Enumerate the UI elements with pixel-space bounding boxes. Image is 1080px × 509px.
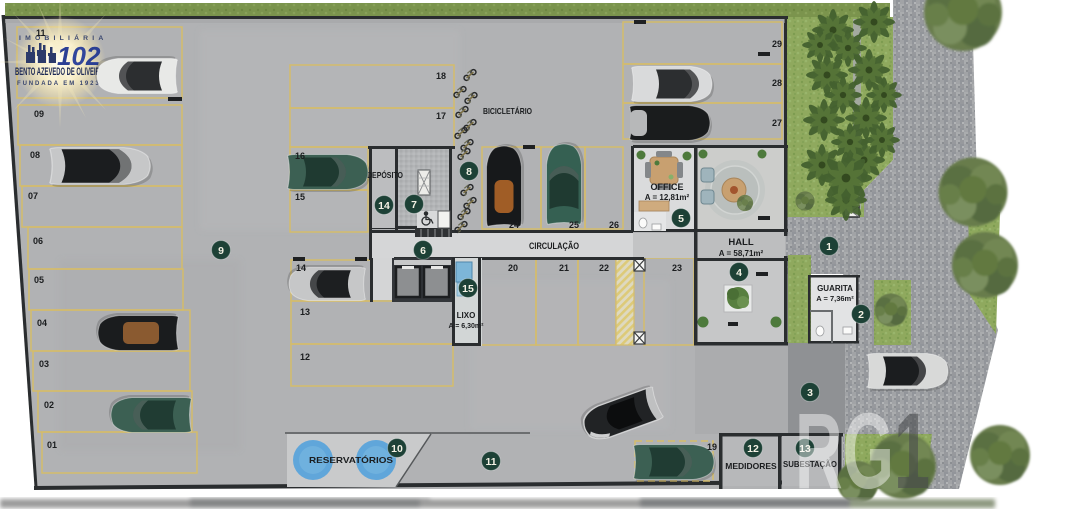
- svg-text:15: 15: [462, 283, 474, 295]
- svg-text:1: 1: [894, 390, 930, 509]
- svg-text:11: 11: [36, 28, 46, 38]
- svg-text:10: 10: [391, 443, 403, 455]
- svg-text:HALL: HALL: [728, 237, 754, 248]
- svg-text:2: 2: [858, 309, 864, 321]
- svg-text:11: 11: [485, 456, 496, 468]
- svg-text:02: 02: [44, 400, 54, 410]
- svg-text:09: 09: [34, 109, 44, 119]
- svg-text:9: 9: [218, 245, 224, 257]
- svg-text:04: 04: [37, 318, 47, 328]
- svg-text:23: 23: [672, 263, 682, 273]
- svg-text:20: 20: [508, 263, 518, 273]
- svg-text:14: 14: [378, 200, 390, 212]
- svg-text:14: 14: [296, 263, 306, 273]
- svg-text:A = 58,71m²: A = 58,71m²: [719, 249, 764, 258]
- svg-text:25: 25: [569, 220, 579, 230]
- svg-text:07: 07: [28, 191, 38, 201]
- svg-text:01: 01: [47, 440, 57, 450]
- svg-text:GUARITA: GUARITA: [817, 284, 853, 293]
- svg-text:28: 28: [772, 78, 782, 88]
- svg-text:06: 06: [33, 236, 43, 246]
- svg-text:29: 29: [772, 39, 782, 49]
- svg-text:03: 03: [39, 359, 49, 369]
- svg-text:DEPÓSITO: DEPÓSITO: [367, 169, 403, 180]
- svg-text:1: 1: [826, 241, 832, 253]
- svg-text:4: 4: [736, 267, 742, 279]
- svg-text:18: 18: [436, 71, 446, 81]
- svg-text:A = 7,36m²: A = 7,36m²: [816, 294, 854, 303]
- svg-text:CIRCULAÇÃO: CIRCULAÇÃO: [529, 241, 579, 251]
- svg-text:8: 8: [466, 166, 472, 178]
- svg-text:26: 26: [609, 220, 619, 230]
- svg-text:13: 13: [300, 307, 310, 317]
- svg-text:08: 08: [30, 150, 40, 160]
- svg-text:12: 12: [747, 443, 759, 455]
- svg-text:15: 15: [295, 192, 305, 202]
- svg-text:RG: RG: [795, 390, 894, 509]
- svg-text:16: 16: [295, 151, 305, 161]
- svg-text:BICICLETÁRIO: BICICLETÁRIO: [483, 106, 532, 116]
- svg-text:6: 6: [420, 245, 426, 257]
- svg-text:7: 7: [411, 199, 417, 211]
- svg-text:05: 05: [34, 275, 44, 285]
- svg-text:FUNDADA EM 1923: FUNDADA EM 1923: [17, 81, 101, 87]
- svg-text:19: 19: [707, 442, 717, 452]
- svg-text:A = 12,81m²: A = 12,81m²: [645, 193, 690, 202]
- svg-text:A = 6,30m²: A = 6,30m²: [449, 323, 485, 330]
- svg-text:RESERVATÓRIOS: RESERVATÓRIOS: [309, 454, 393, 465]
- svg-text:24: 24: [509, 220, 519, 230]
- svg-text:27: 27: [772, 118, 782, 128]
- svg-text:BENTO AZEVEDO DE OLIVEIRA: BENTO AZEVEDO DE OLIVEIRA: [15, 66, 104, 78]
- svg-text:LIXO: LIXO: [457, 311, 476, 320]
- svg-text:17: 17: [436, 111, 446, 121]
- svg-text:MEDIDORES: MEDIDORES: [725, 461, 777, 471]
- svg-text:OFFICE: OFFICE: [651, 182, 684, 192]
- svg-text:22: 22: [599, 263, 609, 273]
- svg-text:21: 21: [559, 263, 569, 273]
- svg-text:12: 12: [300, 352, 310, 362]
- svg-text:5: 5: [678, 213, 684, 225]
